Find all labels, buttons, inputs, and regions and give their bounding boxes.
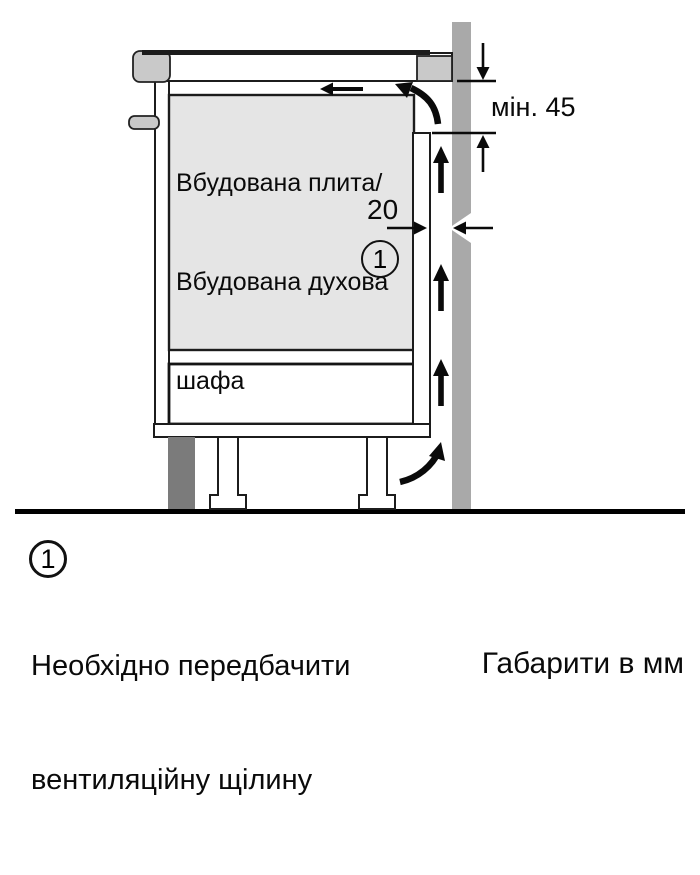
worktop-band [168, 53, 452, 81]
airflow-arrow-up-1 [433, 146, 449, 193]
legend-note-line1: Необхідно передбачити [31, 647, 351, 685]
legend-1-digit: 1 [40, 544, 55, 575]
cabinet-label-line3: шафа [176, 365, 388, 398]
callout-1-digit: 1 [373, 244, 387, 275]
legend-note-line2: вентиляційну щілину [31, 761, 351, 799]
wall [452, 22, 471, 509]
dim-arrow-down [477, 43, 490, 80]
airflow-arrow-up-2 [433, 264, 449, 311]
cabinet-side-panel [155, 80, 169, 437]
floor-line [15, 509, 685, 514]
legend-note: Необхідно передбачити вентиляційну щілин… [31, 571, 351, 875]
cabinet-label: Вбудована плита/ Вбудована духова шафа [176, 101, 388, 464]
handle [129, 116, 159, 129]
airflow-arrow-left [320, 83, 363, 96]
worktop-front-edge [133, 51, 170, 82]
hob-glass-surface [142, 50, 430, 55]
cabinet-label-line1: Вбудована плита/ [176, 167, 388, 200]
dim-label-min-45: мін. 45 [491, 92, 576, 123]
rear-ventilation-panel [413, 133, 430, 424]
airflow-arrow-up-3 [433, 359, 449, 406]
worktop-rear-edge [417, 56, 452, 81]
dim-label-20: 20 [367, 194, 398, 226]
cabinet-label-line2: Вбудована духова [176, 266, 388, 299]
callout-1-marker: 1 [361, 240, 399, 278]
units-note: Габарити в мм [482, 647, 684, 681]
dim-arrow-up [477, 135, 490, 172]
installation-diagram: Вбудована плита/ Вбудована духова шафа м… [0, 0, 700, 700]
